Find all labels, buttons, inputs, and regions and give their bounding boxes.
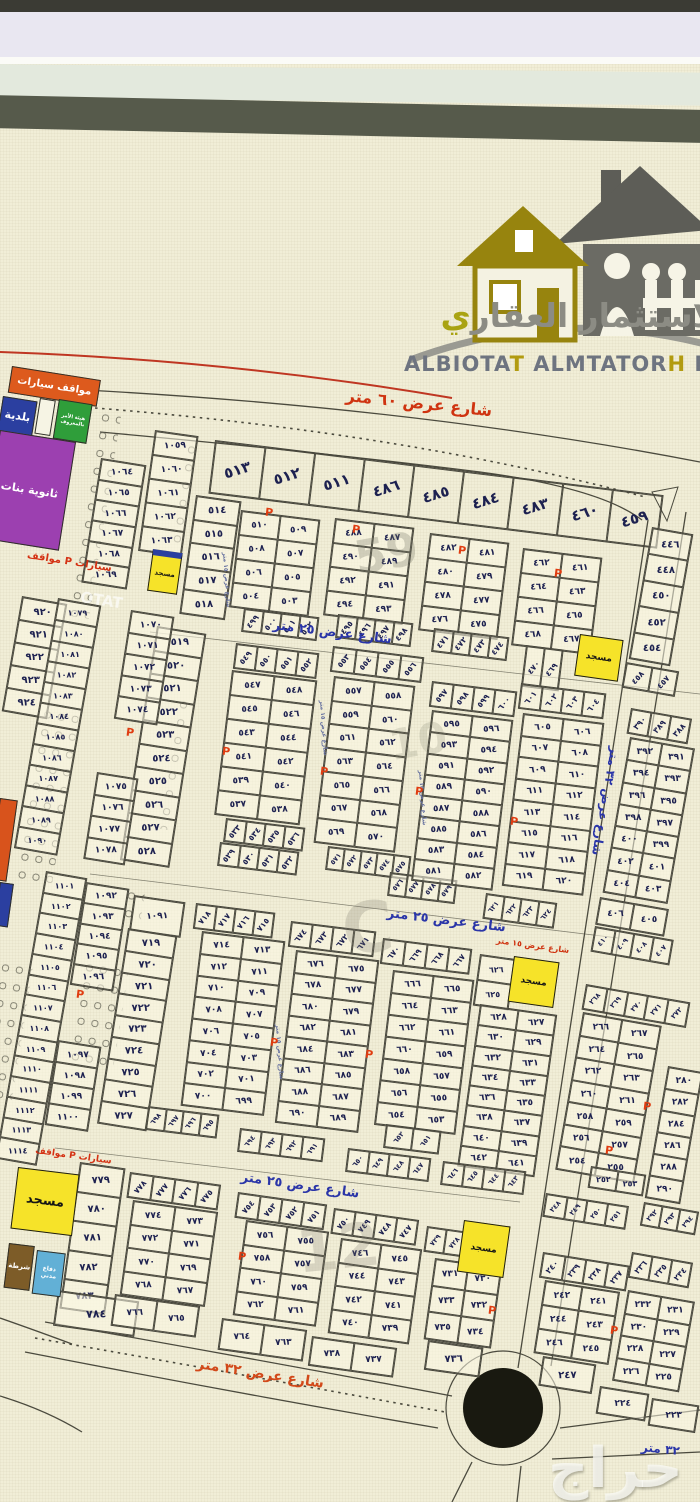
plot: ٤٨٦ xyxy=(358,459,414,517)
plot: ٦٩٤ xyxy=(238,1129,262,1153)
plot: ٦٦٩ xyxy=(403,942,428,969)
plot-block: ٢٨٠٢٨٢٢٨٤٢٨٦٢٨٨٢٩٠ xyxy=(645,1066,700,1204)
plot: ٦٩٣ xyxy=(259,1132,283,1156)
plot: ٧٠٠ xyxy=(182,1083,225,1110)
plot: ٥١١ xyxy=(309,453,365,511)
parking-p-marker: P xyxy=(487,1304,497,1318)
plot: ٦٤٣ xyxy=(502,1170,525,1194)
plot: ٦٤٤ xyxy=(482,1167,505,1191)
plot: ٥٣٨ xyxy=(257,795,302,824)
plot: ٤٠٧ xyxy=(649,937,672,964)
plot-block: ٦٥٠٦٤٩٦٤٨٦٤٧ xyxy=(345,1148,431,1182)
plot-block: ٦٩٤٦٩٣٦٩٢٦٩١ xyxy=(237,1128,325,1162)
plot-block: ٢٥٢٢٥٣ xyxy=(588,1166,647,1196)
plot: ٢٢٣ xyxy=(649,1399,699,1432)
watermark: 10 xyxy=(385,712,451,770)
parking-p-marker: P xyxy=(75,988,85,1002)
plot: ٥٥٤ xyxy=(353,650,378,677)
plot: ٥٥٢ xyxy=(295,652,318,678)
plot: ٧٣٤ xyxy=(457,1317,493,1348)
parking-p-marker: P xyxy=(264,506,274,520)
plot-block: ٧٣٦ xyxy=(424,1340,484,1378)
plot: ٤٨٤ xyxy=(458,472,514,530)
plot-block: ٥١٠٥٠٩٥٠٨٥٠٧٥٠٦٥٠٥٥٠٤٥٠٣ xyxy=(229,510,320,617)
plot-block: ٦٦٦٦٦٥٦٦٤٦٦٣٦٦٢٦٦١٦٦٠٦٥٩٦٥٨٦٥٧٦٥٦٦٥٥٦٥٤٦… xyxy=(374,970,474,1135)
plot: ٢٥٣ xyxy=(615,1171,645,1195)
plot-block: ٧٣٨٧٣٧ xyxy=(308,1336,397,1378)
plot-block: ٢٣٦٢٣٥٢٣٤ xyxy=(627,1252,693,1288)
plot-block: ٦٧٦٦٧٥٦٧٨٦٧٧٦٨٠٦٧٩٦٨٢٦٨١٦٨٤٦٨٣٦٨٦٦٨٥٦٨٨٦… xyxy=(275,950,380,1133)
civil-defense: دفاع مدني xyxy=(32,1250,66,1297)
plot: ٧٣٩ xyxy=(368,1315,411,1344)
parking-p-marker: P xyxy=(642,1100,652,1114)
plot: ٤٨٥ xyxy=(408,465,464,523)
plot: ٢٤٧ xyxy=(539,1357,595,1393)
plot: ٦٥٠ xyxy=(346,1149,369,1173)
parking-p-marker: P xyxy=(125,726,135,740)
plot-block: ٤٤٦٤٤٨٤٥٠٤٥٢٤٥٤ xyxy=(629,527,694,666)
plot: ٥٠٤ xyxy=(230,583,272,612)
plot: ٦٨٩ xyxy=(317,1105,360,1131)
plot: ٢٤٦ xyxy=(535,1329,575,1358)
plot: ٥٣٦ xyxy=(282,826,304,850)
police: شرطة xyxy=(4,1243,35,1291)
plot: ٤٥٧ xyxy=(648,668,678,696)
plot: ٥٦٩ xyxy=(315,818,358,846)
plot: ٥١٢ xyxy=(259,447,315,505)
plot: ٥٩٩ xyxy=(472,687,496,713)
plot: ٦٢٤ xyxy=(536,901,557,927)
plot-block: ٢٤٨٢٤٩٢٥٠٢٥١ xyxy=(542,1193,629,1230)
plot-block: ٤٥٨٤٥٧ xyxy=(621,662,679,697)
plot: ٢٢٥ xyxy=(646,1363,682,1391)
plot: ٢٢٦ xyxy=(613,1358,649,1386)
plot: ٥٥٥ xyxy=(376,653,401,680)
parking-p-marker: P xyxy=(553,567,563,581)
parking-p-marker: P xyxy=(364,1048,374,1062)
plot: ٦٤٨ xyxy=(387,1154,410,1178)
plot: ٤٠٣ xyxy=(635,875,670,903)
scanned-map-page: للاستثمار العقاري ALBIOTAT ALMTATORH R ٥… xyxy=(0,0,700,1502)
plot: ٦٩٠ xyxy=(276,1100,319,1126)
plot: ٧٦٦ xyxy=(112,1295,158,1331)
plot: ٧٦٣ xyxy=(260,1325,306,1361)
parking-p-marker: P xyxy=(604,1144,614,1158)
plot: ٦٩٥ xyxy=(198,1114,218,1138)
plot: ٥١٣ xyxy=(210,441,266,499)
plot: ٧٣٨ xyxy=(309,1337,354,1371)
plot: ٢٥١ xyxy=(604,1204,628,1229)
plot-block: ٧١٤٧١٣٧١٢٧١١٧١٠٧٠٩٧٠٨٧٠٧٧٠٦٧٠٥٧٠٤٧٠٣٧٠٢٧… xyxy=(181,931,286,1116)
plot: ٦٩٢ xyxy=(280,1134,304,1158)
plot: ٥١٨ xyxy=(180,590,227,620)
plot: ٧٤٧ xyxy=(394,1218,418,1245)
plot: ٦٩١ xyxy=(301,1137,325,1161)
plot-block: ٢٣٢٢٣١٢٣٠٢٢٩٢٢٨٢٢٧٢٢٦٢٢٥ xyxy=(612,1290,695,1392)
plot: ٧٤٠ xyxy=(329,1309,372,1338)
plot: ٦٤٦ xyxy=(441,1162,464,1186)
plot: ٦٥١ xyxy=(411,1128,440,1153)
plot: ٢٢٤ xyxy=(597,1387,648,1420)
street-label: شارع عرض ٣٢ متر xyxy=(195,1356,324,1392)
parking-p-marker: P xyxy=(609,1324,619,1338)
watermark: 12 xyxy=(293,1209,383,1287)
plot: ٧٦٥ xyxy=(153,1301,199,1337)
plot: ٤٨٣ xyxy=(507,478,563,536)
plot: ٤٠٤ xyxy=(604,870,639,898)
plot: ٥٩٨ xyxy=(451,685,475,711)
watermark: حراج xyxy=(548,1436,683,1501)
parking-p-marker: P xyxy=(319,765,329,779)
plot: ٤٩٨ xyxy=(391,622,412,646)
mosque: مسجد xyxy=(147,549,183,595)
hisbah-office: هيئة الأمر بالمعروف xyxy=(53,399,93,444)
plot: ٥٨١ xyxy=(412,859,454,885)
plot: ٦٠٢ xyxy=(540,687,564,713)
plot: ٧٦٤ xyxy=(219,1319,265,1355)
plot: ٢٩٠ xyxy=(646,1175,683,1203)
plot: ٧٣٦ xyxy=(425,1341,482,1376)
plot-block: ٦٠٥٦٠٦٦٠٧٦٠٨٦٠٩٦١٠٦١١٦١٢٦١٣٦١٤٦١٥٦١٦٦١٧٦… xyxy=(502,713,605,896)
plot: ٤٠٦ xyxy=(596,898,634,930)
strip-navy xyxy=(0,882,14,928)
plot-block: ٧٧٤٧٧٣٧٧٢٧٧١٧٧٠٧٦٩٧٦٨٧٦٧ xyxy=(120,1200,219,1307)
plot-block: ٢٩٢٢٩٣٢٩٤ xyxy=(640,1202,699,1235)
plot: ٢٣٧ xyxy=(604,1263,629,1290)
plot: ٥٥٦ xyxy=(398,655,423,682)
plot: ٤٥٤ xyxy=(630,632,674,665)
plot-block: ٦٢٨٦٢٧٦٣٠٦٢٩٦٣٢٦٣١٦٣٤٦٣٣٦٣٦٦٣٥٦٣٨٦٣٧٦٤٠٦… xyxy=(457,1004,557,1177)
plot: ٦٠١ xyxy=(519,684,543,710)
parking-p-marker: P xyxy=(509,815,519,829)
plot: ٥٥٣ xyxy=(331,647,356,674)
plot: ٦٧٣ xyxy=(310,925,334,951)
plot: ٦٢٠ xyxy=(543,868,585,894)
parking-p-marker: P xyxy=(237,1250,247,1264)
plot: ٧١٥ xyxy=(252,911,274,937)
street-label: شارع عرض ١٥ متر xyxy=(496,936,570,955)
plot: ٢٥٢ xyxy=(589,1167,619,1191)
plot: ٧٦١ xyxy=(274,1297,318,1326)
plot: ٦٠٣ xyxy=(561,689,585,715)
plot: ٥٩٧ xyxy=(430,682,454,708)
girls-school: ثانوية بنات xyxy=(0,430,76,551)
parking-p-marker: P xyxy=(221,745,231,759)
plot: ٦١٩ xyxy=(503,863,545,889)
plot: ٧٧٥ xyxy=(194,1183,220,1210)
plot: ٧٣٧ xyxy=(351,1343,396,1377)
plot: ٦٥٢ xyxy=(384,1125,413,1150)
plot: ٢٣٤ xyxy=(668,1260,692,1287)
plot-block: ٢٦٦٢٦٧٢٦٤٢٦٥٢٦٢٢٦٣٢٦٠٢٦١٢٥٨٢٥٩٢٥٦٢٥٧٢٥٤٢… xyxy=(555,1012,662,1183)
plot: ٦٧٤ xyxy=(289,922,313,948)
plot: ٤٠٥ xyxy=(630,904,668,936)
plot-block: ٦٩٨٦٩٧٦٩٦٦٩٥ xyxy=(145,1106,219,1139)
plot: ٦٤٥ xyxy=(462,1165,485,1189)
plot: ٧٣٥ xyxy=(425,1312,461,1343)
watermark: C xyxy=(338,885,398,972)
street-label: مواقف P سيارات xyxy=(35,1146,113,1167)
plot-map-plane: ٥١٣٥١٢٥١١٤٨٦٤٨٥٤٨٤٤٨٣٤٦٠٤٥٩٥١٤٥١٥٥١٦٥١٧٥… xyxy=(0,0,700,1502)
plot-block: ٢٢٤ xyxy=(596,1386,650,1421)
plot: ٥٣٧ xyxy=(215,790,260,819)
plot: ٤٦٠ xyxy=(557,484,613,542)
parking-p-marker: P xyxy=(457,544,467,558)
mosque: مسجد xyxy=(457,1220,511,1278)
mosque: مسجد xyxy=(10,1167,79,1236)
parking-p-marker: P xyxy=(269,1036,279,1050)
plot: ٦٦٧ xyxy=(446,947,471,974)
plot: ٦٠٠ xyxy=(492,690,516,716)
plot: ٧٦٢ xyxy=(234,1291,278,1320)
plot: ٦٦٨ xyxy=(425,944,450,971)
plot: ٣٨٨ xyxy=(667,716,691,743)
plot-block: ٧٦٤٧٦٣ xyxy=(218,1318,308,1362)
plot: ٦٩٩ xyxy=(222,1088,265,1115)
street-label: شارع عرض ٦٠ متر xyxy=(345,386,493,420)
plot: ٤٧٤ xyxy=(487,636,508,660)
plot: ٦٠٤ xyxy=(581,692,605,718)
plot: ٦٤٩ xyxy=(367,1152,390,1176)
mosque: مسجد xyxy=(574,634,623,682)
plot-block: ٢٤٢٢٤١٢٤٤٢٤٣٢٤٦٢٤٥ xyxy=(533,1280,620,1365)
plot: ٤٦٩ xyxy=(540,648,563,690)
divider-box xyxy=(34,398,55,436)
plot: ٦٤٧ xyxy=(407,1157,430,1181)
plot: ٥٧٠ xyxy=(354,823,397,851)
mosque: مسجد xyxy=(508,956,560,1008)
plot: ٢٤٥ xyxy=(571,1334,611,1363)
parking-p-marker: P xyxy=(414,785,424,799)
plot-block: ٢٢٣ xyxy=(648,1398,700,1433)
plot: ٥٣٢ xyxy=(276,850,298,874)
plot: ٢٩٤ xyxy=(676,1209,698,1234)
watermark: 59 xyxy=(350,521,422,585)
plot: ٢٧٢ xyxy=(665,1000,690,1027)
plot: ٥٨٢ xyxy=(452,864,494,890)
